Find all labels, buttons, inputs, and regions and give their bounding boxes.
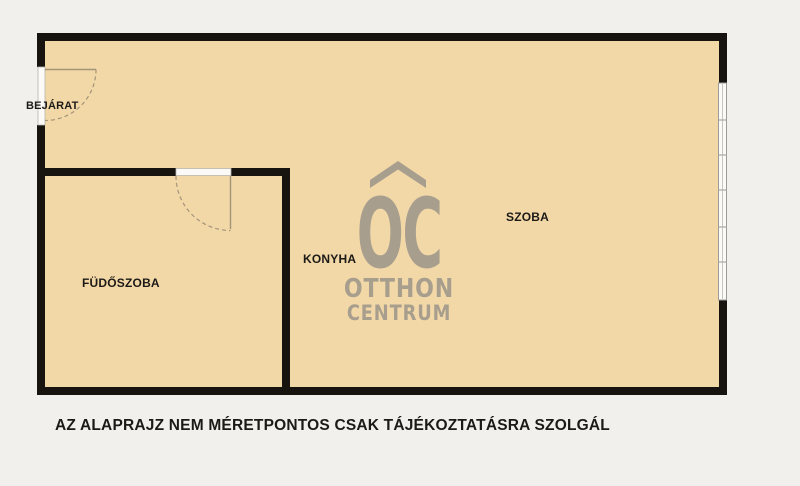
- window: [719, 83, 727, 300]
- wall-bottom: [37, 387, 727, 395]
- room-label-entrance: BEJÁRAT: [26, 100, 79, 112]
- wall-bathroom-right: [282, 168, 290, 395]
- disclaimer-text: AZ ALAPRAJZ NEM MÉRETPONTOS CSAK TÁJÉKOZ…: [55, 417, 610, 435]
- bathroom-door-threshold: [176, 169, 231, 176]
- room-label-kitchen: KONYHA: [303, 252, 356, 266]
- floorplan-drawing: [0, 0, 800, 486]
- wall-bathroom-top-right: [231, 168, 290, 176]
- wall-left-upper: [37, 33, 45, 67]
- entrance-door-threshold: [38, 67, 45, 125]
- room-label-living: SZOBA: [506, 210, 549, 224]
- wall-bathroom-top-left: [37, 168, 176, 176]
- wall-top: [37, 33, 727, 41]
- room-label-bathroom: FÜDŐSZOBA: [82, 276, 160, 290]
- floor-area: [41, 37, 723, 391]
- wall-right-upper: [719, 33, 727, 83]
- wall-left-lower: [37, 125, 45, 395]
- wall-right-lower: [719, 300, 727, 395]
- floorplan-canvas: BEJÁRAT FÜDŐSZOBA KONYHA SZOBA OC OTTHON…: [0, 0, 800, 486]
